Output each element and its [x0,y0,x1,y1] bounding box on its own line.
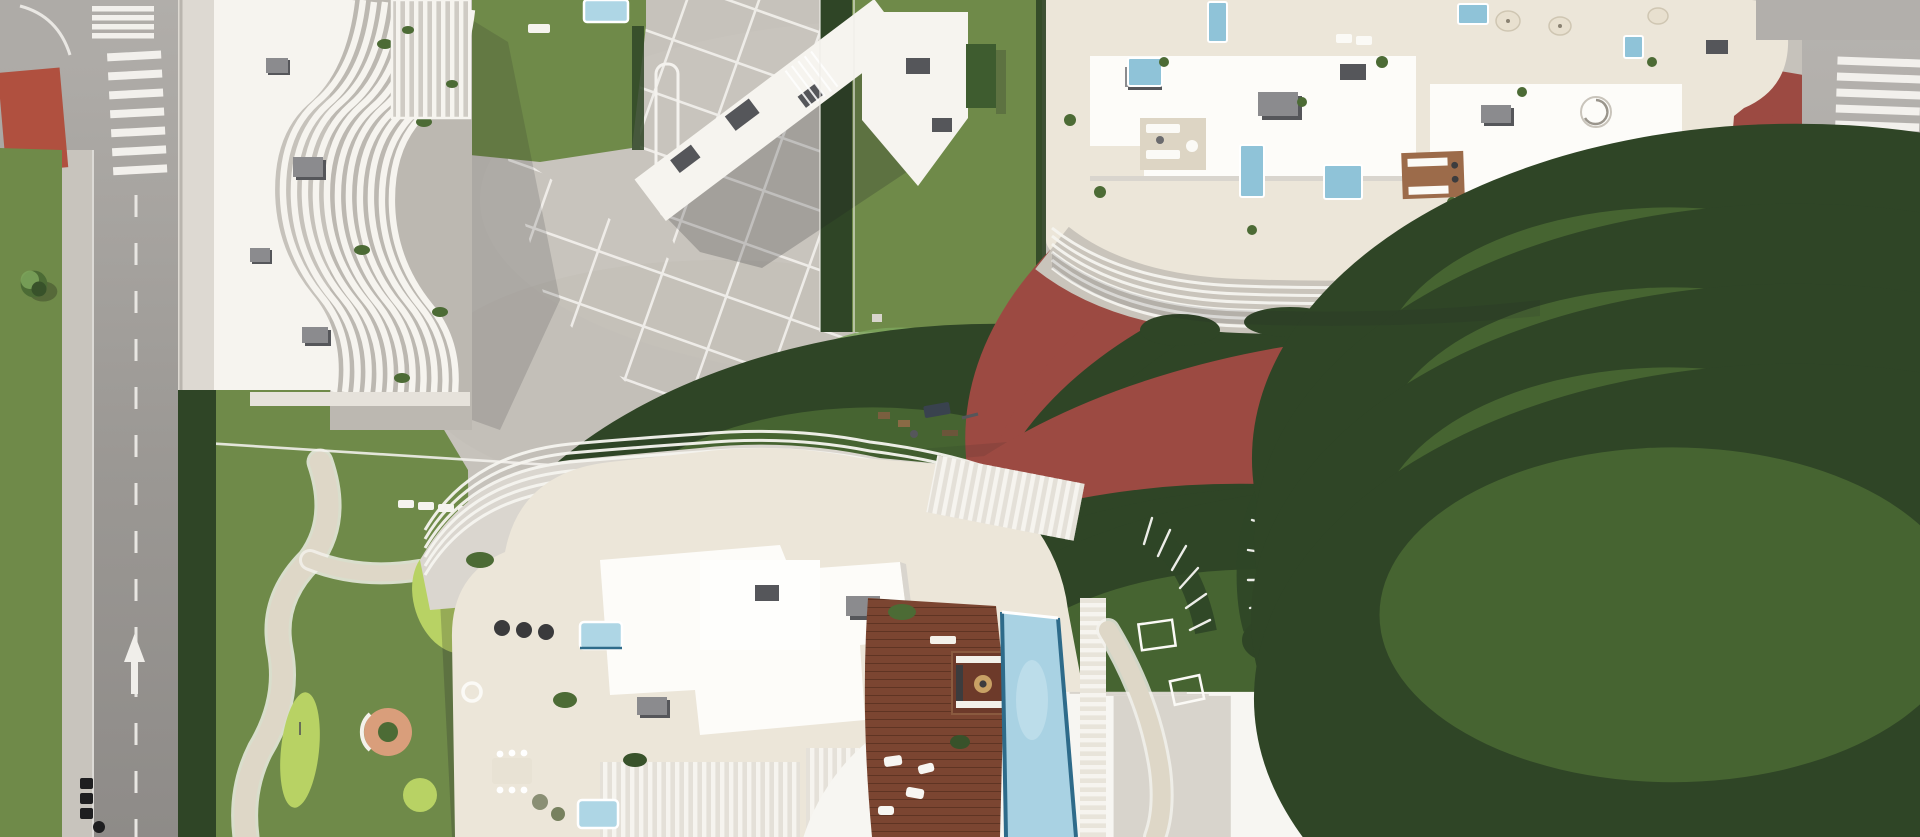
left-road-corner [0,0,100,58]
spiral-stair [1581,97,1611,127]
roof-planting [466,552,494,568]
bean-bag [878,806,894,815]
rooftop-pool [584,0,628,22]
dining-set [492,758,532,784]
roof-volume-upper [700,560,820,650]
plunge-pool [580,622,622,649]
roof-planting [623,753,647,767]
roof-planting [553,692,577,708]
putting-green-round [403,778,437,812]
deck-table [930,636,956,644]
lawn-marker [872,314,882,322]
garden-bench [528,24,550,33]
planter-bush [378,722,398,742]
wood-dining-terrace [1401,151,1465,199]
deck-planting [888,604,916,620]
scene-canvas [0,0,1920,837]
lounge-rug [1140,118,1206,170]
left-sidewalk [62,150,92,837]
wooden-deck [850,590,1020,837]
planter-pot [551,807,565,821]
garden-hedge-line [632,26,644,150]
green-cube-shadow [996,50,1006,114]
deck-planting [950,735,970,749]
aerial-render [0,0,1920,837]
green-roof-cube [966,44,996,108]
gym-bar [942,430,958,436]
gym-bench [898,420,910,427]
right-road-corner [1756,0,1920,40]
gym-ball [910,430,918,438]
slab-notch [1090,146,1144,178]
slatted-roof-terrace [392,0,470,118]
plunge-pool [578,800,618,828]
roadside-verge [0,148,62,837]
planter-pot [532,794,548,810]
gym-bench [878,412,890,419]
west-boundary-wall [178,0,214,390]
